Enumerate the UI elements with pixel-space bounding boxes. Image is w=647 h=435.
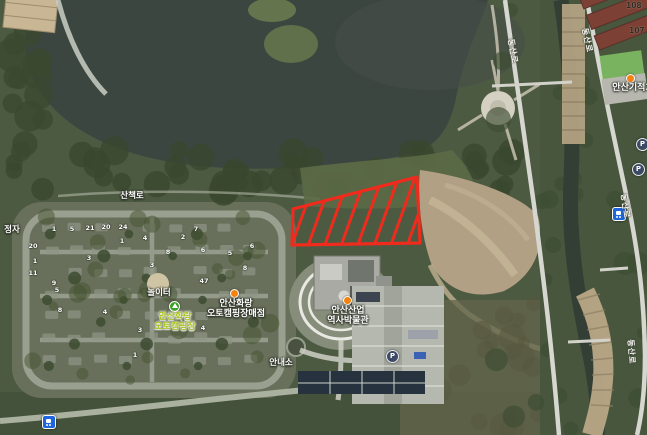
- satellite-imagery: [0, 0, 647, 435]
- reed-patch: [264, 25, 318, 63]
- top-left-building: [3, 0, 59, 33]
- playground-sand-circle: [147, 273, 169, 295]
- satellite-map[interactable]: 산책로 정자 놀이터 안내소 안산화랑 오토캠핑장 안산화랑 오토캠핑장매점 안…: [0, 0, 647, 435]
